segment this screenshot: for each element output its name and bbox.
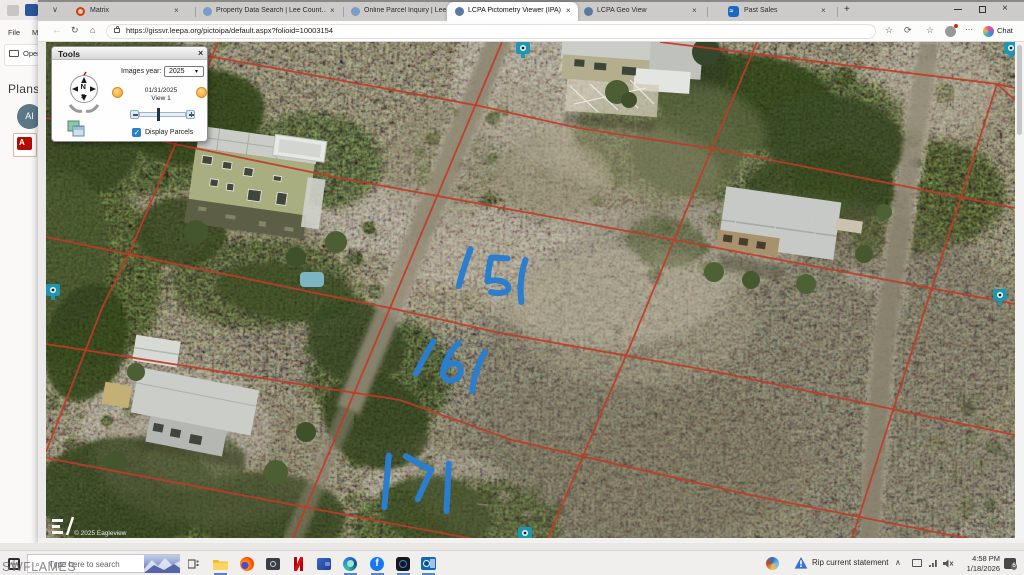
svg-text:N: N [81, 82, 86, 91]
svg-text:S: S [81, 94, 86, 101]
svg-text:© 2025 Eagleview: © 2025 Eagleview [74, 529, 127, 537]
